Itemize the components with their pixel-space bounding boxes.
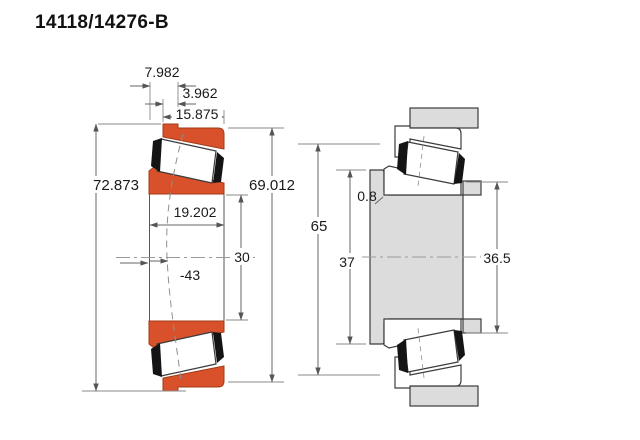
svg-text:72.873: 72.873 [93, 177, 139, 194]
svg-text:19.202: 19.202 [174, 204, 217, 220]
dim-cup-width: 15.875 [163, 106, 224, 124]
svg-text:30: 30 [234, 249, 250, 265]
svg-text:0.8: 0.8 [357, 188, 377, 204]
svg-text:36.5: 36.5 [483, 250, 510, 266]
bearing-cross-section-view: 7.982 3.962 15.875 7 [82, 64, 296, 391]
technical-drawing: 7.982 3.962 15.875 7 [0, 0, 640, 440]
drawing-page: 14118/14276-B [0, 0, 640, 440]
svg-text:7.982: 7.982 [144, 64, 179, 80]
dim-inner-ref: -43 [120, 261, 200, 283]
dim-total-width: 19.202 [150, 204, 224, 225]
svg-text:69.012: 69.012 [249, 177, 295, 194]
svg-text:15.875: 15.875 [176, 106, 219, 122]
dim-bore-diameter: 30 [226, 195, 253, 320]
svg-text:3.962: 3.962 [182, 85, 217, 101]
housing-bottom [410, 386, 478, 406]
svg-text:37: 37 [339, 254, 355, 270]
abutment-top [463, 181, 481, 195]
abutment-bottom [463, 319, 481, 333]
housing-top [410, 108, 478, 128]
svg-text:65: 65 [311, 218, 328, 235]
svg-text:-43: -43 [180, 267, 200, 283]
mounting-view: 65 37 0.8 36.5 [298, 108, 513, 406]
